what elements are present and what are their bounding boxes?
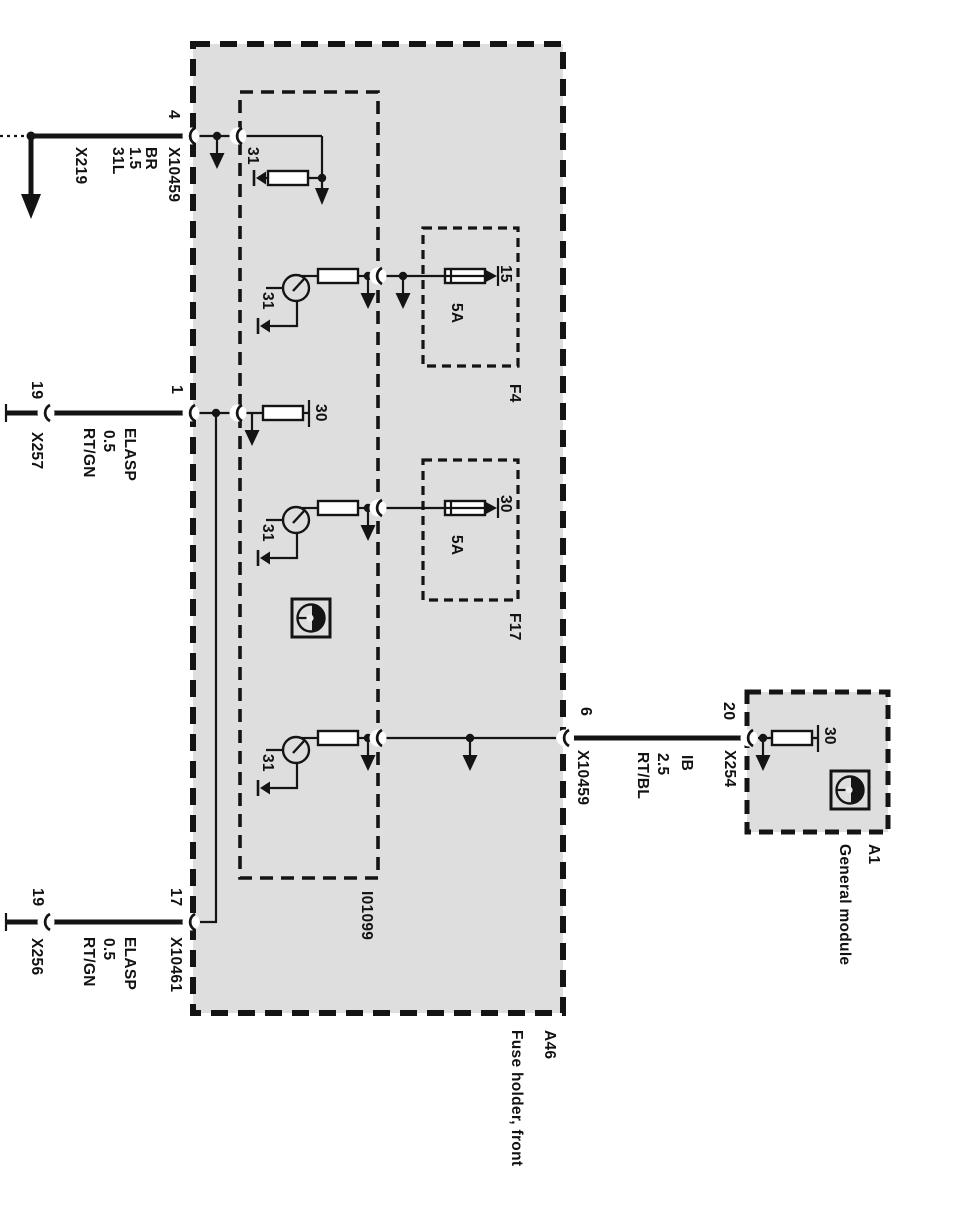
pin1-far-pin-label: 19 xyxy=(28,381,45,399)
pin1-wire-color-label: RT/GN xyxy=(80,428,97,478)
connector-x257 xyxy=(38,405,55,422)
pin17-wire-color-label: RT/GN xyxy=(80,937,97,987)
pin1-wire-size-label: 0.5 xyxy=(100,430,117,453)
fuse-f4-terminal-label: 15 xyxy=(497,265,514,283)
connector-x10459-pin6 xyxy=(557,730,574,747)
connector-x254-label: X254 xyxy=(721,750,738,787)
module-a46-name-label: Fuse holder, front xyxy=(508,1030,525,1166)
connector-inner-out3 xyxy=(370,730,387,747)
connector-x254-pin20 xyxy=(741,730,758,747)
module-i01099-id-label: I01099 xyxy=(358,891,375,940)
terminal31-label: 31 xyxy=(259,524,276,542)
pin6-wire-size-label: 2.5 xyxy=(654,753,671,776)
pin17-far-pin-label: 19 xyxy=(29,888,46,906)
connector-pin1 xyxy=(183,405,200,422)
pin6-wire-color-label: RT/BL xyxy=(634,752,651,799)
wire-pin4-external xyxy=(0,132,184,220)
terminal31-label: 31 xyxy=(244,147,261,165)
module-a46-id-label: A46 xyxy=(541,1030,558,1059)
pin4-number-label: 4 xyxy=(165,110,182,119)
connector-inner-pin4 xyxy=(230,128,247,145)
resistor xyxy=(268,171,308,185)
resistor xyxy=(263,406,303,420)
fuse-f17-terminal-label: 30 xyxy=(497,495,514,513)
pin6-connector-label: X10459 xyxy=(574,750,591,805)
connector-x10459-pin4 xyxy=(183,128,200,145)
pin17-wire-code-label: ELASP xyxy=(121,937,138,990)
ground-arrow-x219-head xyxy=(21,194,41,219)
pin6-wire-code-label: IB xyxy=(678,755,695,771)
terminal31-label: 31 xyxy=(259,754,276,772)
pin17-number-label: 17 xyxy=(167,888,184,906)
pin4-wire-color-label: BR xyxy=(142,147,159,170)
connector-inner-pin1 xyxy=(230,405,247,422)
pin4-connector-label: X10459 xyxy=(165,147,182,202)
pin20-number-label: 20 xyxy=(720,702,737,720)
fuse-f17-rating-label: 5A xyxy=(448,535,465,555)
connector-x256 xyxy=(38,914,55,931)
wire-pin1-external xyxy=(6,404,184,422)
ground-ref-x219-label: X219 xyxy=(72,147,89,184)
pin1-number-label: 1 xyxy=(168,385,185,394)
connector-inner-out1 xyxy=(370,268,387,285)
pin1-far-connector-label: X257 xyxy=(28,432,45,469)
pin17-wire-size-label: 0.5 xyxy=(100,938,117,961)
fuse-f4-rating-label: 5A xyxy=(448,303,465,323)
pin17-far-connector-label: X256 xyxy=(28,938,45,975)
resistor xyxy=(772,731,812,745)
pin4-wire-size-label: 1.5 xyxy=(126,147,143,170)
pin17-connector-label: X10461 xyxy=(167,937,184,992)
fuse-f17-id-label: F17 xyxy=(506,613,523,641)
fuse-f4-id-label: F4 xyxy=(506,384,523,403)
module-box-a1 xyxy=(747,692,888,832)
terminal30-label: 30 xyxy=(821,727,838,745)
pin4-wire-code-label: 31L xyxy=(109,147,126,175)
wiring-diagram: 4 X10459 BR 1.5 31L X219 19 X257 ELASP 0… xyxy=(0,0,963,1219)
terminal30-label: 30 xyxy=(312,404,329,422)
module-a1-id-label: A1 xyxy=(865,844,882,864)
wire-pin17-external xyxy=(6,913,184,931)
module-a1-name-label: General module xyxy=(836,844,853,965)
connector-x10461-pin17 xyxy=(183,914,200,931)
terminal31-label: 31 xyxy=(259,292,276,310)
connector-inner-out2 xyxy=(370,500,387,517)
pin1-wire-code-label: ELASP xyxy=(121,428,138,481)
pin6-number-label: 6 xyxy=(577,707,594,716)
